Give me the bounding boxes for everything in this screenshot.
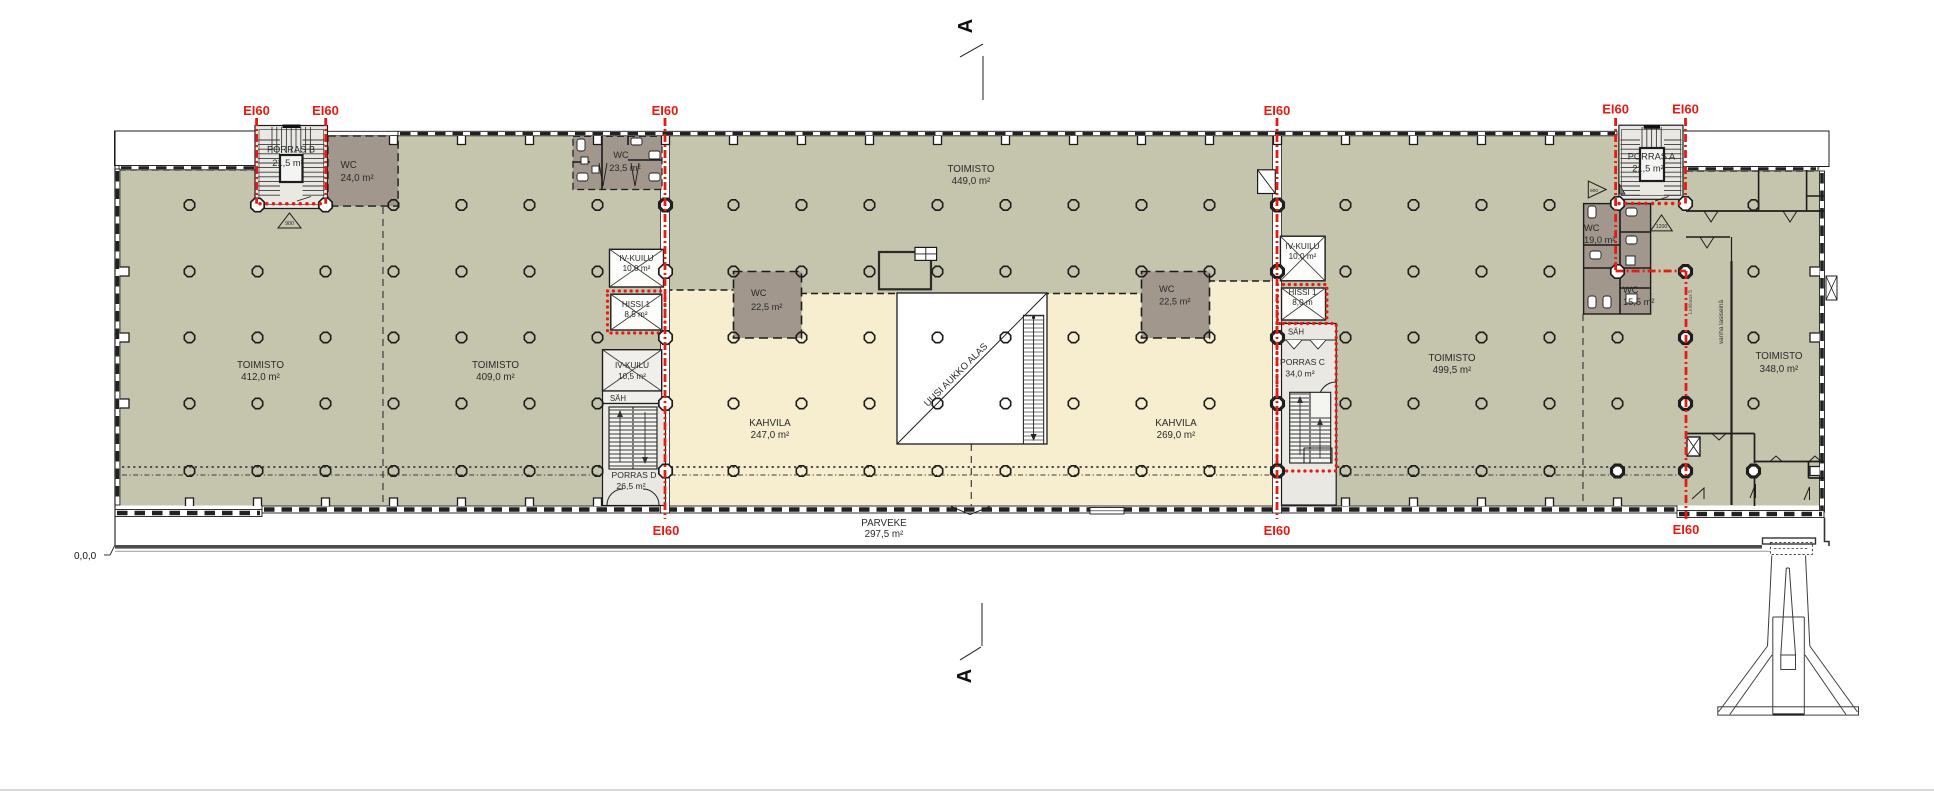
svg-text:PARVEKE: PARVEKE xyxy=(861,518,907,529)
svg-text:348,0 m²: 348,0 m² xyxy=(1760,364,1799,375)
svg-text:19,0 m²: 19,0 m² xyxy=(1584,235,1616,245)
svg-text:24,0 m²: 24,0 m² xyxy=(341,173,375,184)
svg-text:WC: WC xyxy=(341,160,357,171)
svg-text:KAHVILA: KAHVILA xyxy=(1155,418,1197,429)
svg-text:21,5 m²: 21,5 m² xyxy=(1632,164,1664,174)
svg-text:EI60: EI60 xyxy=(652,103,679,118)
svg-text:IV-KUILU: IV-KUILU xyxy=(619,254,653,263)
svg-text:IV-KUILU: IV-KUILU xyxy=(615,361,649,370)
svg-text:EI60: EI60 xyxy=(1602,102,1629,117)
svg-text:A: A xyxy=(954,669,976,683)
svg-text:EI60: EI60 xyxy=(312,103,339,118)
svg-text:8,5 m²: 8,5 m² xyxy=(624,310,647,319)
svg-text:WC: WC xyxy=(613,150,629,160)
svg-text:10,0 m²: 10,0 m² xyxy=(623,264,651,273)
svg-text:409,0 m²: 409,0 m² xyxy=(476,372,515,383)
svg-text:1200: 1200 xyxy=(1656,224,1668,230)
svg-text:HISSI 1: HISSI 1 xyxy=(1288,288,1317,297)
svg-text:0,0,0: 0,0,0 xyxy=(74,551,97,562)
svg-text:269,0 m²: 269,0 m² xyxy=(1157,430,1196,441)
svg-text:A: A xyxy=(955,19,977,33)
svg-text:8,0 m: 8,0 m xyxy=(1292,298,1313,307)
svg-text:22,5 m²: 22,5 m² xyxy=(1159,297,1191,307)
svg-text:EI60: EI60 xyxy=(1264,103,1291,118)
svg-text:TOIMISTO: TOIMISTO xyxy=(1756,351,1803,362)
svg-text:HISSI 1: HISSI 1 xyxy=(622,300,651,309)
svg-text:34,0 m²: 34,0 m² xyxy=(1285,369,1314,379)
svg-text:22,5 m²: 22,5 m² xyxy=(751,302,783,312)
svg-text:EI60: EI60 xyxy=(243,103,270,118)
svg-text:TOIMISTO: TOIMISTO xyxy=(948,164,995,175)
svg-text:900: 900 xyxy=(285,221,294,227)
svg-text:WC: WC xyxy=(751,288,767,298)
svg-text:EI60: EI60 xyxy=(653,523,680,538)
svg-text:WC: WC xyxy=(1584,223,1600,233)
svg-text:15,5 m²: 15,5 m² xyxy=(1623,297,1655,307)
svg-text:EI60: EI60 xyxy=(1264,523,1291,538)
svg-text:TOIMISTO: TOIMISTO xyxy=(237,360,284,371)
svg-text:900: 900 xyxy=(1590,188,1598,194)
svg-text:449,0 m²: 449,0 m² xyxy=(952,176,991,187)
svg-text:412,0 m²: 412,0 m² xyxy=(241,372,280,383)
svg-text:TOIMISTO: TOIMISTO xyxy=(472,360,519,371)
svg-text:PORRAS B: PORRAS B xyxy=(267,145,315,155)
svg-text:Leikkaus 5: Leikkaus 5 xyxy=(1688,290,1694,314)
svg-text:SÄH: SÄH xyxy=(610,394,626,403)
svg-text:PORRAS D: PORRAS D xyxy=(612,470,657,480)
svg-text:247,0 m²: 247,0 m² xyxy=(751,430,790,441)
svg-text:21,5 m²: 21,5 m² xyxy=(272,158,304,168)
svg-text:KAHVILA: KAHVILA xyxy=(749,418,791,429)
svg-text:WC: WC xyxy=(1159,284,1175,294)
svg-text:SÄH: SÄH xyxy=(1288,328,1304,337)
svg-text:vanha lasiseinä: vanha lasiseinä xyxy=(1718,300,1725,345)
svg-text:23,5 m²: 23,5 m² xyxy=(609,163,641,173)
svg-text:499,5 m²: 499,5 m² xyxy=(1433,365,1472,376)
svg-text:WC: WC xyxy=(1623,285,1639,295)
svg-text:PORRAS A: PORRAS A xyxy=(1628,152,1676,162)
svg-text:EI60: EI60 xyxy=(1673,522,1700,537)
svg-text:EI60: EI60 xyxy=(1672,102,1699,117)
svg-text:10,5 m²: 10,5 m² xyxy=(618,372,646,381)
svg-text:297,5 m²: 297,5 m² xyxy=(865,529,904,540)
svg-text:10,0 m²: 10,0 m² xyxy=(1289,252,1317,261)
svg-text:TOIMISTO: TOIMISTO xyxy=(1429,353,1476,364)
svg-text:IV-KUILU: IV-KUILU xyxy=(1285,242,1319,251)
svg-text:PORRAS C: PORRAS C xyxy=(1280,357,1325,367)
